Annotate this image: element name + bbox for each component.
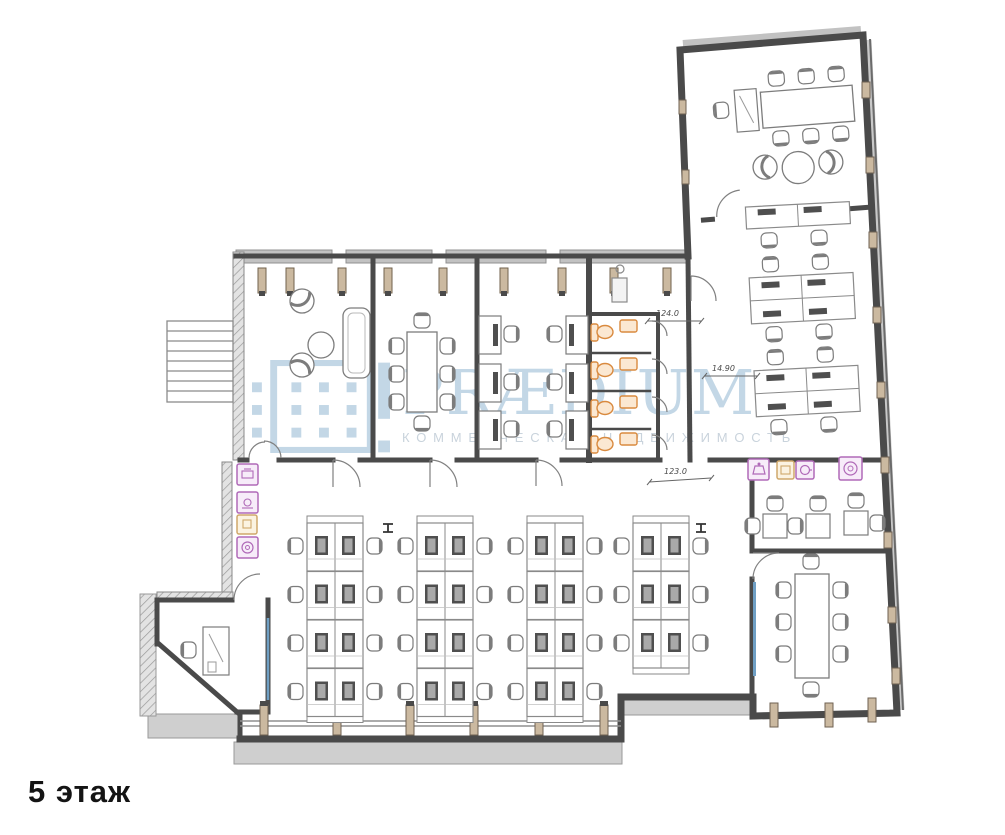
scanner-icon bbox=[237, 492, 258, 513]
pilaster-feet bbox=[259, 291, 670, 296]
entrance-office bbox=[181, 618, 268, 700]
structural-column-marker bbox=[696, 524, 706, 532]
kitchen-unit-icon bbox=[237, 515, 257, 534]
floor-plan-svg: 124.0 14.90 123.0 bbox=[0, 0, 1005, 835]
printer-icon bbox=[237, 464, 258, 485]
wing-open-office bbox=[745, 202, 861, 436]
exec-conference-table bbox=[760, 85, 854, 128]
wc-block bbox=[591, 320, 637, 453]
open-space bbox=[288, 516, 708, 723]
round-table bbox=[308, 332, 334, 358]
dimension-label: 14.90 bbox=[712, 364, 735, 373]
hatched-walls bbox=[157, 252, 244, 601]
external-stairs bbox=[167, 321, 233, 402]
dimension-label: 124.0 bbox=[656, 309, 679, 318]
meeting-room-center bbox=[389, 313, 455, 431]
structural-column-marker bbox=[383, 524, 393, 532]
kettle-icon bbox=[748, 459, 769, 480]
floor-label: 5 этаж bbox=[28, 774, 131, 810]
meeting-table bbox=[795, 574, 829, 678]
coffee-machine-icon bbox=[839, 457, 862, 480]
dimension-label: 123.0 bbox=[664, 467, 687, 476]
print-corner bbox=[237, 464, 258, 558]
lounge-room bbox=[286, 285, 370, 382]
office-room bbox=[479, 316, 588, 449]
coffee-cup-icon bbox=[796, 461, 814, 479]
floor-plan-page: PRÆDIUM КОММЕРЧЕСКАЯ НЕДВИЖИМОСТЬ bbox=[0, 0, 1005, 835]
pilasters-top bbox=[258, 268, 671, 293]
coffee-table bbox=[781, 150, 815, 184]
kitchen bbox=[745, 457, 885, 538]
conference-table bbox=[407, 332, 437, 412]
meeting-room-right bbox=[755, 554, 849, 697]
executive-office bbox=[690, 65, 870, 221]
microwave-icon bbox=[777, 461, 794, 479]
wing-right-edge bbox=[870, 39, 903, 710]
copier-icon bbox=[237, 537, 258, 558]
